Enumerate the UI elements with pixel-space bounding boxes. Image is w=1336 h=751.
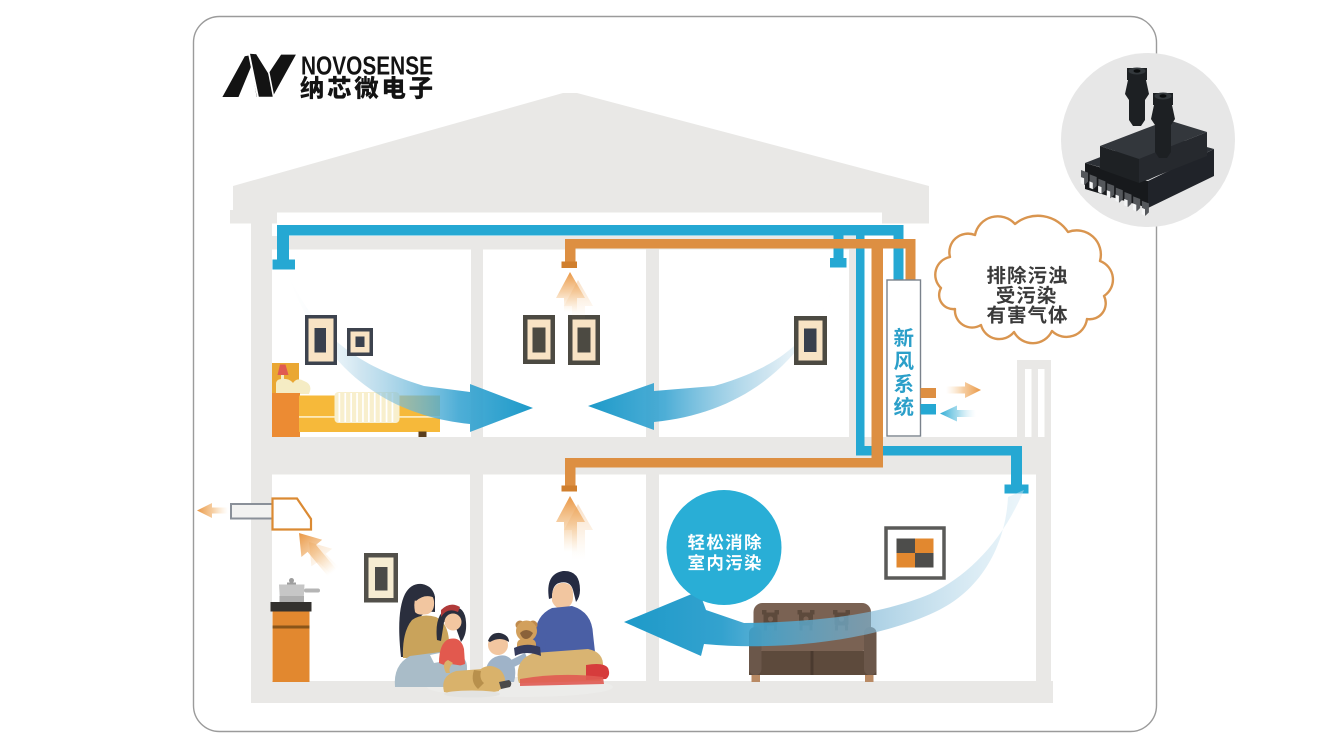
svg-text:NOVOSENSE: NOVOSENSE bbox=[301, 53, 433, 81]
